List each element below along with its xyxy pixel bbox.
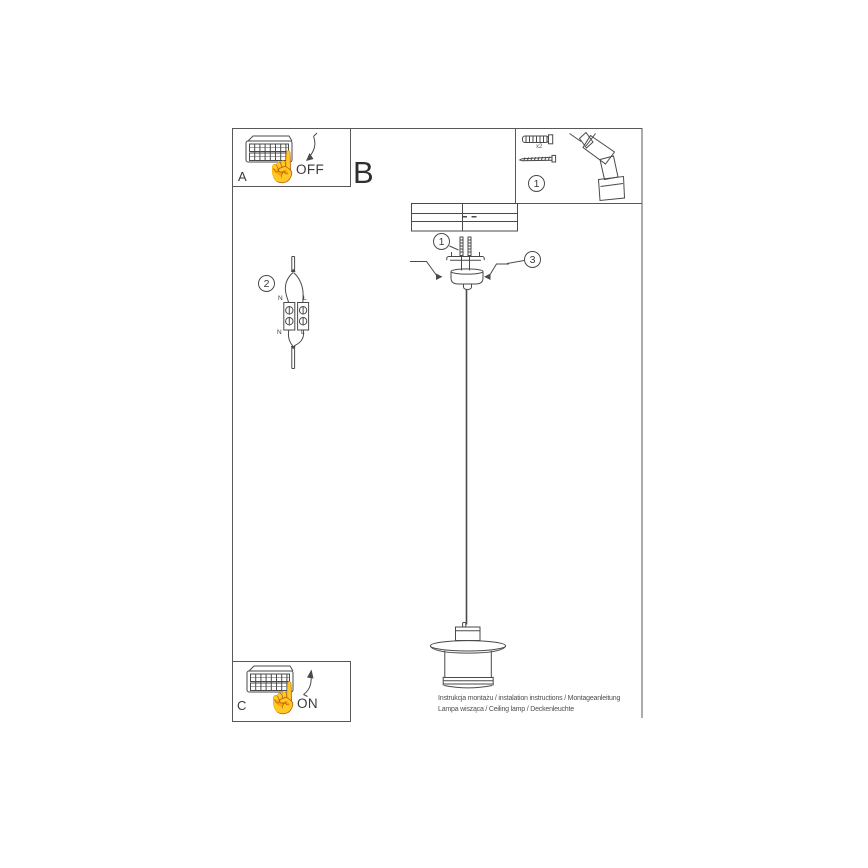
off-arrow-icon bbox=[306, 133, 317, 161]
lamp-shade-icon bbox=[430, 627, 505, 688]
step-2-badge: 2 bbox=[258, 275, 275, 292]
footer-caption-line1: Instrukcja montażu / instalation instruc… bbox=[438, 694, 620, 704]
step-3-bracket-badge: 3 bbox=[524, 251, 541, 268]
footer-caption-line2: Lampa wisząca / Ceiling lamp / Deckenleu… bbox=[438, 705, 574, 715]
on-arrow-icon bbox=[304, 670, 314, 697]
instruction-sheet: A ☝ OFF B x2 1 1 3 2 N L N L C ☝ ON Inst… bbox=[0, 0, 868, 868]
anchor-quantity-label: x2 bbox=[536, 144, 542, 150]
mounting-screws-icon bbox=[460, 237, 471, 256]
terminal-bottom-live-label: L bbox=[301, 329, 305, 336]
step-1-badge: 1 bbox=[528, 175, 545, 192]
terminal-bottom-neutral-label: N bbox=[277, 329, 282, 336]
ceiling-icon bbox=[412, 204, 518, 232]
mounting-bracket-icon bbox=[447, 252, 485, 271]
screw-icon bbox=[520, 155, 556, 162]
terminal-top-neutral-label: N bbox=[278, 295, 283, 302]
drill-icon bbox=[570, 133, 625, 201]
section-b-label: B bbox=[353, 155, 374, 191]
diagram-artwork bbox=[0, 0, 868, 868]
step-1-screws-badge: 1 bbox=[433, 233, 450, 250]
section-c-label: C bbox=[237, 698, 246, 713]
sheet-frame bbox=[233, 129, 643, 723]
terminal-block-icon bbox=[284, 257, 309, 369]
canopy-icon bbox=[451, 269, 483, 290]
pendant-cord-icon bbox=[463, 290, 467, 628]
on-label: ON bbox=[297, 696, 318, 711]
wall-plug-icon bbox=[523, 135, 553, 144]
off-label: OFF bbox=[296, 162, 324, 177]
terminal-top-live-label: L bbox=[303, 295, 307, 302]
assembly-leader-lines bbox=[410, 246, 524, 280]
section-a-label: A bbox=[238, 169, 247, 184]
